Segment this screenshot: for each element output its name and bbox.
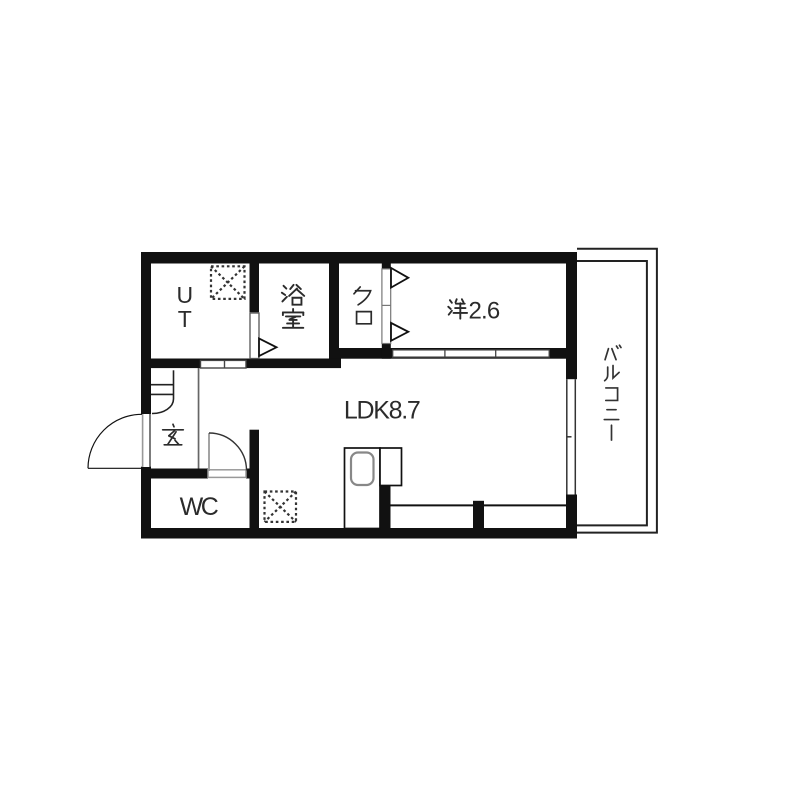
svg-text:WC: WC <box>180 493 219 521</box>
svg-text:U: U <box>176 282 193 308</box>
svg-text:2.6: 2.6 <box>469 298 500 325</box>
svg-text:T: T <box>178 306 192 332</box>
svg-text:LDK8.7: LDK8.7 <box>344 397 420 425</box>
